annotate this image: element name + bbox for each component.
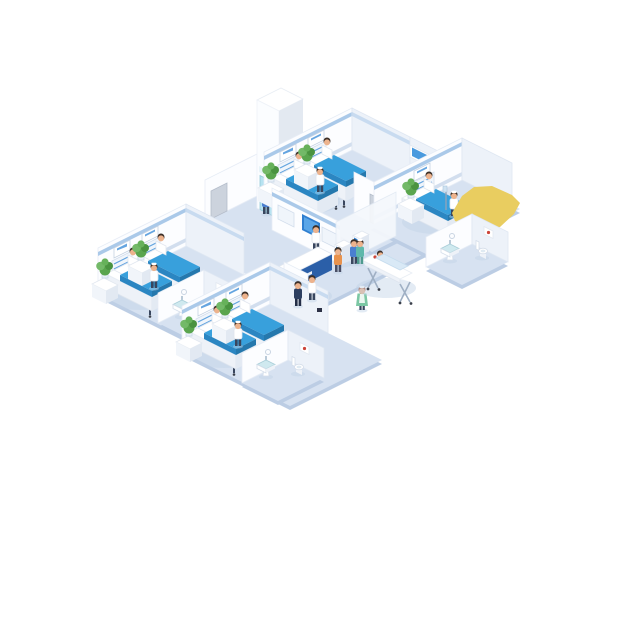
iv-bag xyxy=(443,186,447,192)
illustration-canvas: Isometric hospital ward floor illustrati… xyxy=(0,0,640,640)
hospital-ward-illustration: Isometric hospital ward floor illustrati… xyxy=(0,0,640,640)
